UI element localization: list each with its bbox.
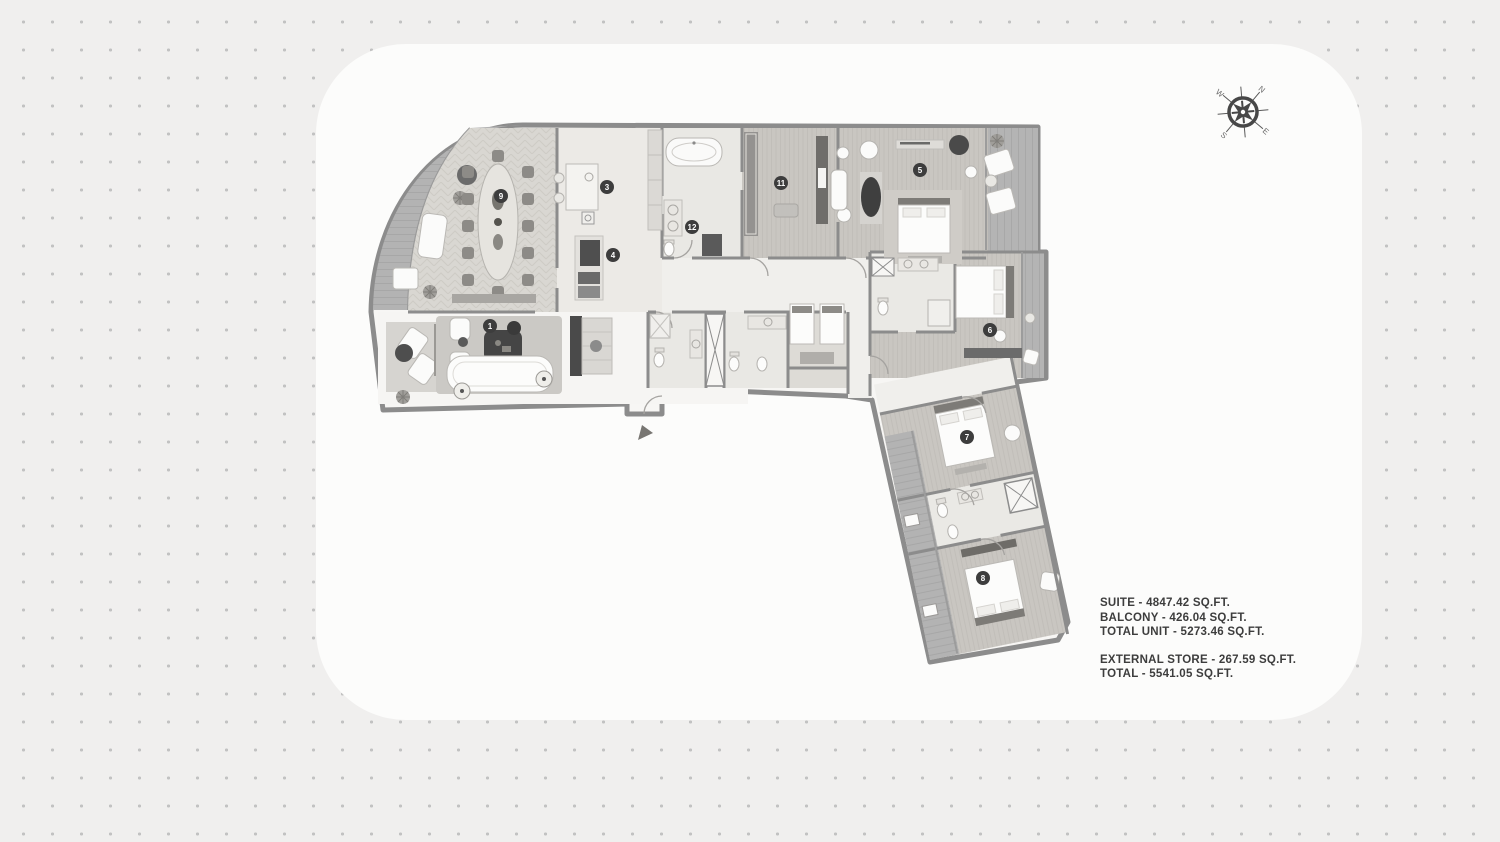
room-marker-3: 3 (600, 180, 614, 194)
svg-text:3: 3 (605, 183, 610, 192)
south-wing (874, 356, 1072, 662)
svg-text:7: 7 (965, 433, 970, 442)
area-line-balcony: BALCONY - 426.04 SQ.FT. (1100, 611, 1296, 626)
area-line-suite: SUITE - 4847.42 SQ.FT. (1100, 596, 1296, 611)
area-line-total: TOTAL - 5541.05 SQ.FT. (1100, 667, 1296, 682)
corridor (848, 312, 872, 398)
svg-text:5: 5 (918, 166, 923, 175)
room-marker-1: 1 (483, 319, 497, 333)
svg-text:4: 4 (611, 251, 616, 260)
room-marker-7: 7 (960, 430, 974, 444)
svg-text:W: W (1214, 88, 1226, 100)
entry-arrow-icon (638, 425, 653, 440)
external-store-box (904, 514, 920, 528)
canvas-background: 1 9 3 4 12 11 (0, 0, 1500, 842)
room-marker-12: 12 (685, 220, 699, 234)
room-marker-9: 9 (494, 189, 508, 203)
floor-plan: 1 9 3 4 12 11 (0, 0, 1500, 842)
svg-text:12: 12 (688, 223, 697, 232)
area-summary: SUITE - 4847.42 SQ.FT. BALCONY - 426.04 … (1100, 596, 1296, 682)
kitchen (557, 128, 662, 312)
compass-icon: N E S W (1206, 75, 1279, 148)
room-marker-4: 4 (606, 248, 620, 262)
svg-text:S: S (1219, 130, 1229, 140)
area-line-external-store: EXTERNAL STORE - 267.59 SQ.FT. (1100, 653, 1296, 668)
svg-text:6: 6 (988, 326, 993, 335)
area-line-total-unit: TOTAL UNIT - 5273.46 SQ.FT. (1100, 625, 1296, 640)
external-store-box (922, 604, 938, 618)
svg-text:8: 8 (981, 574, 986, 583)
svg-text:1: 1 (488, 322, 493, 331)
svg-text:11: 11 (777, 179, 786, 188)
room-marker-8: 8 (976, 571, 990, 585)
room-marker-6: 6 (983, 323, 997, 337)
svg-text:9: 9 (499, 192, 504, 201)
room-marker-5: 5 (913, 163, 927, 177)
room-marker-11: 11 (774, 176, 788, 190)
